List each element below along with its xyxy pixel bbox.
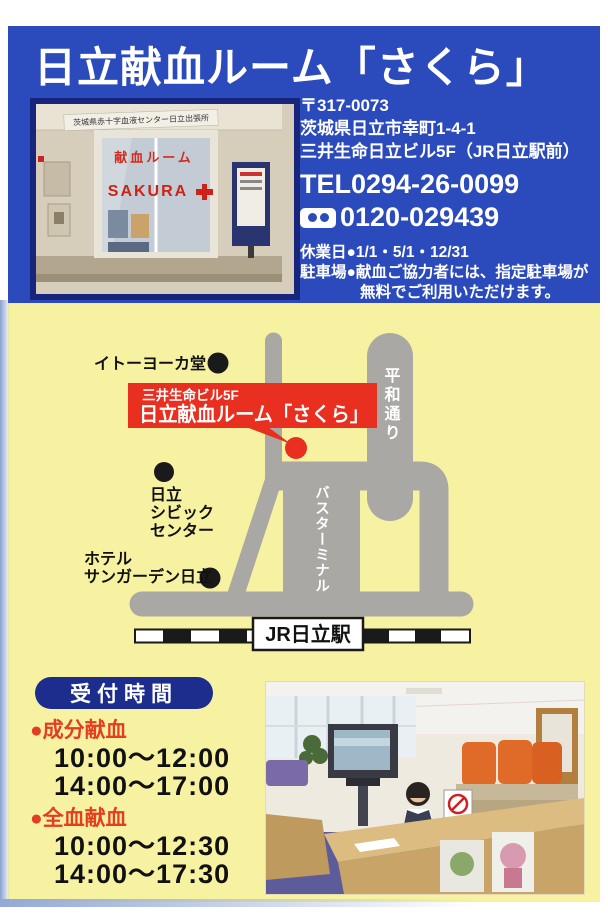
hours-group-whole-blood: ●全血献血 10:00～12:30 14:00～17:30 — [30, 802, 270, 888]
address-line2: 三井生命日立ビル5F（JR日立駅前） — [300, 140, 600, 163]
ceiling-vent — [406, 688, 442, 694]
page-title: 日立献血ルーム「さくら」 — [34, 34, 594, 95]
flyer: 日立献血ルーム「さくら」 茨城県赤十字血液センター日立出張所 — [0, 0, 608, 916]
door-poster-2 — [131, 214, 149, 238]
dot-civic-center — [154, 462, 174, 482]
map-label-room: 日立献血ルーム「さくら」 — [139, 402, 369, 426]
brand-text: SAKURA — [108, 183, 188, 200]
hours-label-whole-blood: ●全血献血 — [30, 802, 270, 832]
hours-time: 10:00～12:30 — [54, 832, 270, 860]
civic-line1: 日立 — [150, 485, 182, 504]
hours-time: 10:00～12:00 — [54, 744, 270, 772]
freedial-number: 0120-029439 — [340, 202, 499, 233]
interior-photo-art — [266, 682, 584, 894]
door-poster-3 — [108, 242, 149, 252]
dot-itoyokado — [208, 353, 229, 374]
parking-note-line1: 駐車場●献血ご協力者には、指定駐車場が — [300, 263, 600, 283]
map-label-itoyokado: イトーヨーカ堂 — [94, 354, 206, 373]
page-edge-bottom — [0, 899, 560, 907]
closed-days: 休業日●1/1・5/1・12/31 — [300, 243, 600, 263]
hours-group-component: ●成分献血 10:00～12:00 14:00～17:00 — [30, 714, 270, 800]
road-narrow-street — [234, 341, 274, 600]
map-label-station: JR日立駅 — [265, 622, 351, 646]
phone-number: TEL0294-26-0099 — [300, 169, 600, 200]
hours-time: 14:00～17:00 — [54, 772, 270, 800]
interior-photo — [266, 682, 584, 894]
postal-code: 〒317-0073 — [300, 94, 600, 117]
room-highlight-label: 三井生命ビル5F 日立献血ルーム「さくら」 — [128, 383, 377, 444]
parking-note-line2: 無料でご利用いただけます。 — [300, 283, 600, 303]
map-roads — [142, 341, 461, 604]
door-poster-1 — [108, 210, 128, 238]
map-label-bus-terminal: バスターミナル — [313, 485, 329, 594]
notes: 休業日●1/1・5/1・12/31 駐車場●献血ご協力者には、指定駐車場が 無料… — [300, 243, 600, 303]
map-label-hotel: ホテル サンガーデン日立 — [84, 550, 212, 586]
station-box: JR日立駅 — [253, 618, 363, 650]
access-map: 平和通り バスターミナル JR日立駅 イトーヨーカ堂 日立 シビック センター … — [8, 303, 600, 660]
freedial-row: 0120-029439 — [300, 202, 600, 233]
map-label-civic-center: 日立 シビック センター — [150, 485, 214, 540]
civic-line3: センター — [150, 522, 214, 540]
location-dot — [285, 437, 307, 459]
waiting-seats-left — [266, 760, 308, 786]
contact-info: 〒317-0073 茨城県日立市幸町1-4-1 三井生命日立ビル5F（JR日立駅… — [300, 94, 600, 303]
wall-frame — [44, 162, 70, 196]
red-marker — [38, 156, 44, 162]
door-text: 献血ルーム — [114, 150, 194, 165]
hours-label-component-donation: ●成分献血 — [30, 714, 270, 744]
hotel-line1: ホテル — [84, 550, 132, 568]
map-label-building: 三井生命ビル5F — [142, 387, 239, 403]
hotel-line2: サンガーデン日立 — [84, 567, 212, 586]
civic-line2: シビック — [150, 504, 214, 522]
hours-heading: 受付時間 — [70, 678, 178, 708]
address-line1: 茨城県日立市幸町1-4-1 — [300, 117, 600, 140]
display-stand — [232, 162, 270, 258]
wall-box-slot — [54, 212, 64, 224]
header: 日立献血ルーム「さくら」 茨城県赤十字血液センター日立出張所 — [8, 26, 600, 304]
hours-heading-badge: 受付時間 — [35, 677, 213, 709]
entrance-photo-art: 茨城県赤十字血液センター日立出張所 献血ルーム SAKURA — [36, 104, 282, 282]
freedial-icon — [300, 208, 336, 228]
map-label-heiwa-street: 平和通り — [382, 367, 401, 443]
entrance-photo: 茨城県赤十字血液センター日立出張所 献血ルーム SAKURA — [30, 98, 300, 300]
hours-time: 14:00～17:30 — [54, 860, 270, 888]
page-edge-left — [0, 300, 10, 906]
photo-floor-shadow — [36, 274, 282, 282]
